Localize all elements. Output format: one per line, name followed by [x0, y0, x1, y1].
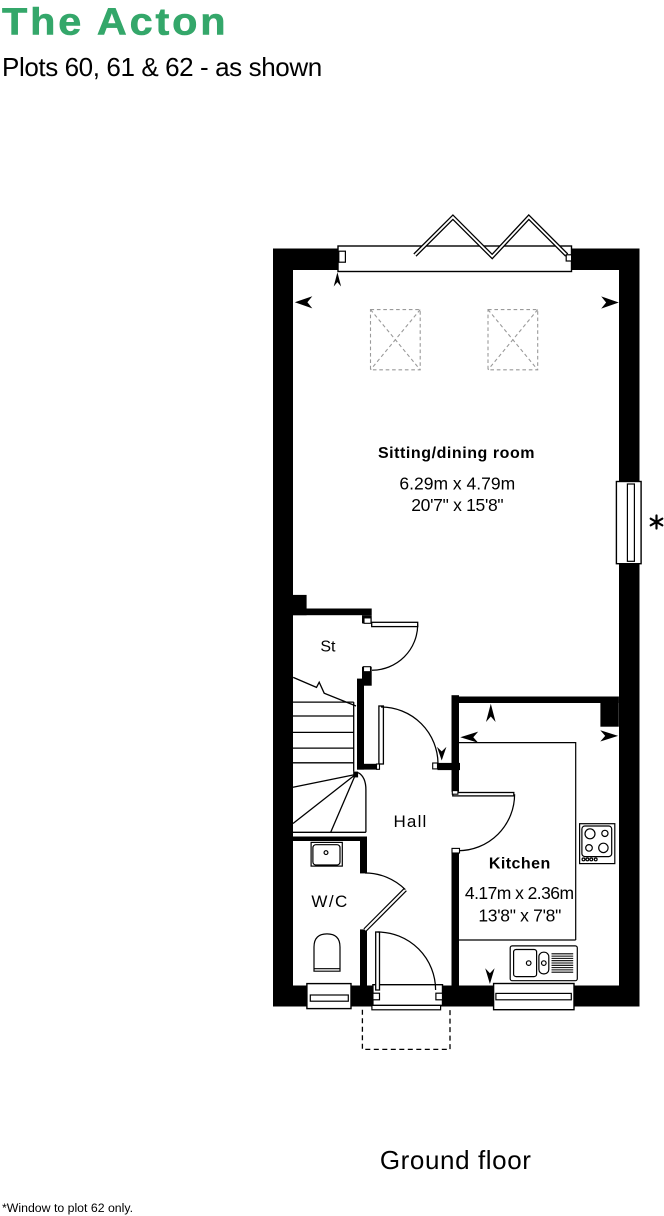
svg-text:Sitting/dining room: Sitting/dining room: [378, 445, 535, 462]
svg-text:Hall: Hall: [393, 812, 427, 831]
svg-text:4.17m x 2.36m: 4.17m x 2.36m: [465, 883, 574, 903]
svg-text:W/C: W/C: [311, 892, 348, 911]
svg-text:St: St: [320, 639, 336, 656]
svg-text:*Window to plot 62 only.: *Window to plot 62 only.: [2, 1201, 133, 1215]
svg-text:Kitchen: Kitchen: [489, 855, 551, 872]
svg-text:20'7" x 15'8": 20'7" x 15'8": [411, 495, 503, 515]
svg-text:13'8" x 7'8": 13'8" x 7'8": [478, 905, 561, 925]
svg-text:Ground floor: Ground floor: [380, 1145, 532, 1175]
svg-text:6.29m x 4.79m: 6.29m x 4.79m: [399, 473, 515, 493]
svg-text:Plots 60, 61 & 62 - as shown: Plots 60, 61 & 62 - as shown: [2, 52, 322, 82]
svg-text:The Acton: The Acton: [2, 1, 228, 43]
